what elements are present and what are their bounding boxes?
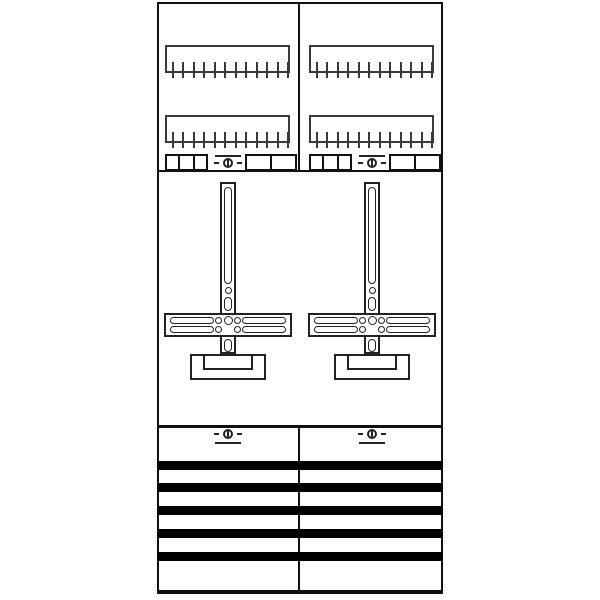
cell-divider [322,154,324,171]
busbar [157,461,443,470]
rail-slot-horizontal [242,317,286,324]
comb-tick [277,132,279,148]
seal-screw-line [215,155,241,157]
cell-divider [270,154,272,171]
seal-screw-dash [358,162,363,164]
cell-divider [337,154,339,171]
comb-tick [421,132,423,148]
comb-tick [368,132,370,148]
comb-tick [431,62,433,78]
base-plate-inner [347,354,397,370]
seal-screw-dash [381,162,386,164]
rail-slot-horizontal [314,317,358,324]
busbar [157,552,443,561]
seal-screw-dash [214,162,219,164]
comb-tick [182,62,184,78]
comb-tick [316,62,318,78]
comb-tick [337,132,339,148]
comb-tick [410,132,412,148]
comb-tick [245,62,247,78]
rail-slot-short [224,297,232,311]
rail-slot-long [224,187,232,284]
seal-screw-dash [358,433,363,435]
section-line [157,425,443,428]
comb-tick [214,132,216,148]
rail-slot-horizontal [314,326,358,333]
comb-tick [410,62,412,78]
comb-tick [235,132,237,148]
comb-tick [277,62,279,78]
rail-hole [215,317,222,324]
comb-tick [316,132,318,148]
schematic-canvas [0,0,600,600]
comb-tick [193,62,195,78]
rail-slot-long [368,187,376,284]
rail-slot-horizontal [170,317,214,324]
comb-tick [193,132,195,148]
seal-screw-dash [381,433,386,435]
rail-hole [378,317,385,324]
comb-tick [182,132,184,148]
rail-hole [215,326,222,333]
comb-tick [400,62,402,78]
comb-tick [214,62,216,78]
comb-tick [245,132,247,148]
rail-hole [378,326,385,333]
seal-screw-slot [227,431,229,437]
rail-hole [359,326,366,333]
comb-tick [266,62,268,78]
seal-screw-dash [237,433,242,435]
comb-tick [358,62,360,78]
seal-screw-dash [237,162,242,164]
comb-tick [347,62,349,78]
center-divider-top [298,2,300,170]
comb-tick [266,132,268,148]
comb-tick [256,62,258,78]
comb-tick [287,62,289,78]
comb-tick [368,62,370,78]
comb-tick [172,132,174,148]
rail-hole [234,326,241,333]
comb-tick [224,132,226,148]
busbar [157,529,443,538]
comb-tick [235,62,237,78]
comb-tick [224,62,226,78]
cell-divider [178,154,180,171]
comb-tick [337,62,339,78]
center-hole [224,316,233,325]
terminal-block [309,154,352,171]
comb-tick [379,132,381,148]
comb-tick [347,132,349,148]
seal-screw-line [215,442,241,444]
busbar [157,483,443,492]
comb-tick [389,132,391,148]
comb-tick [358,132,360,148]
rail-hole [359,317,366,324]
rail-hole [234,317,241,324]
busbar [157,506,443,515]
seal-screw-slot [227,160,229,166]
comb-tick [203,132,205,148]
comb-tick [389,62,391,78]
comb-tick [287,132,289,148]
cell-divider [414,154,416,171]
seal-screw-line [359,442,385,444]
comb-tick [256,132,258,148]
comb-tick [326,132,328,148]
seal-screw-dash [214,433,219,435]
seal-screw-slot [371,431,373,437]
comb-tick [203,62,205,78]
rail-slot-horizontal [386,317,430,324]
seal-screw-line [359,155,385,157]
rail-slot-horizontal [170,326,214,333]
cell-divider [193,154,195,171]
pilot-hole [225,287,232,294]
terminal-block [165,154,208,171]
comb-tick [326,62,328,78]
comb-tick [379,62,381,78]
comb-tick [400,132,402,148]
comb-tick [431,132,433,148]
rail-slot-short [368,297,376,311]
rail-slot-short [368,339,376,352]
center-hole [368,316,377,325]
seal-screw-slot [371,160,373,166]
rail-slot-short [224,339,232,352]
pilot-hole [369,287,376,294]
comb-tick [172,62,174,78]
rail-slot-horizontal [386,326,430,333]
base-plate-inner [203,354,253,370]
rail-slot-horizontal [242,326,286,333]
comb-tick [421,62,423,78]
